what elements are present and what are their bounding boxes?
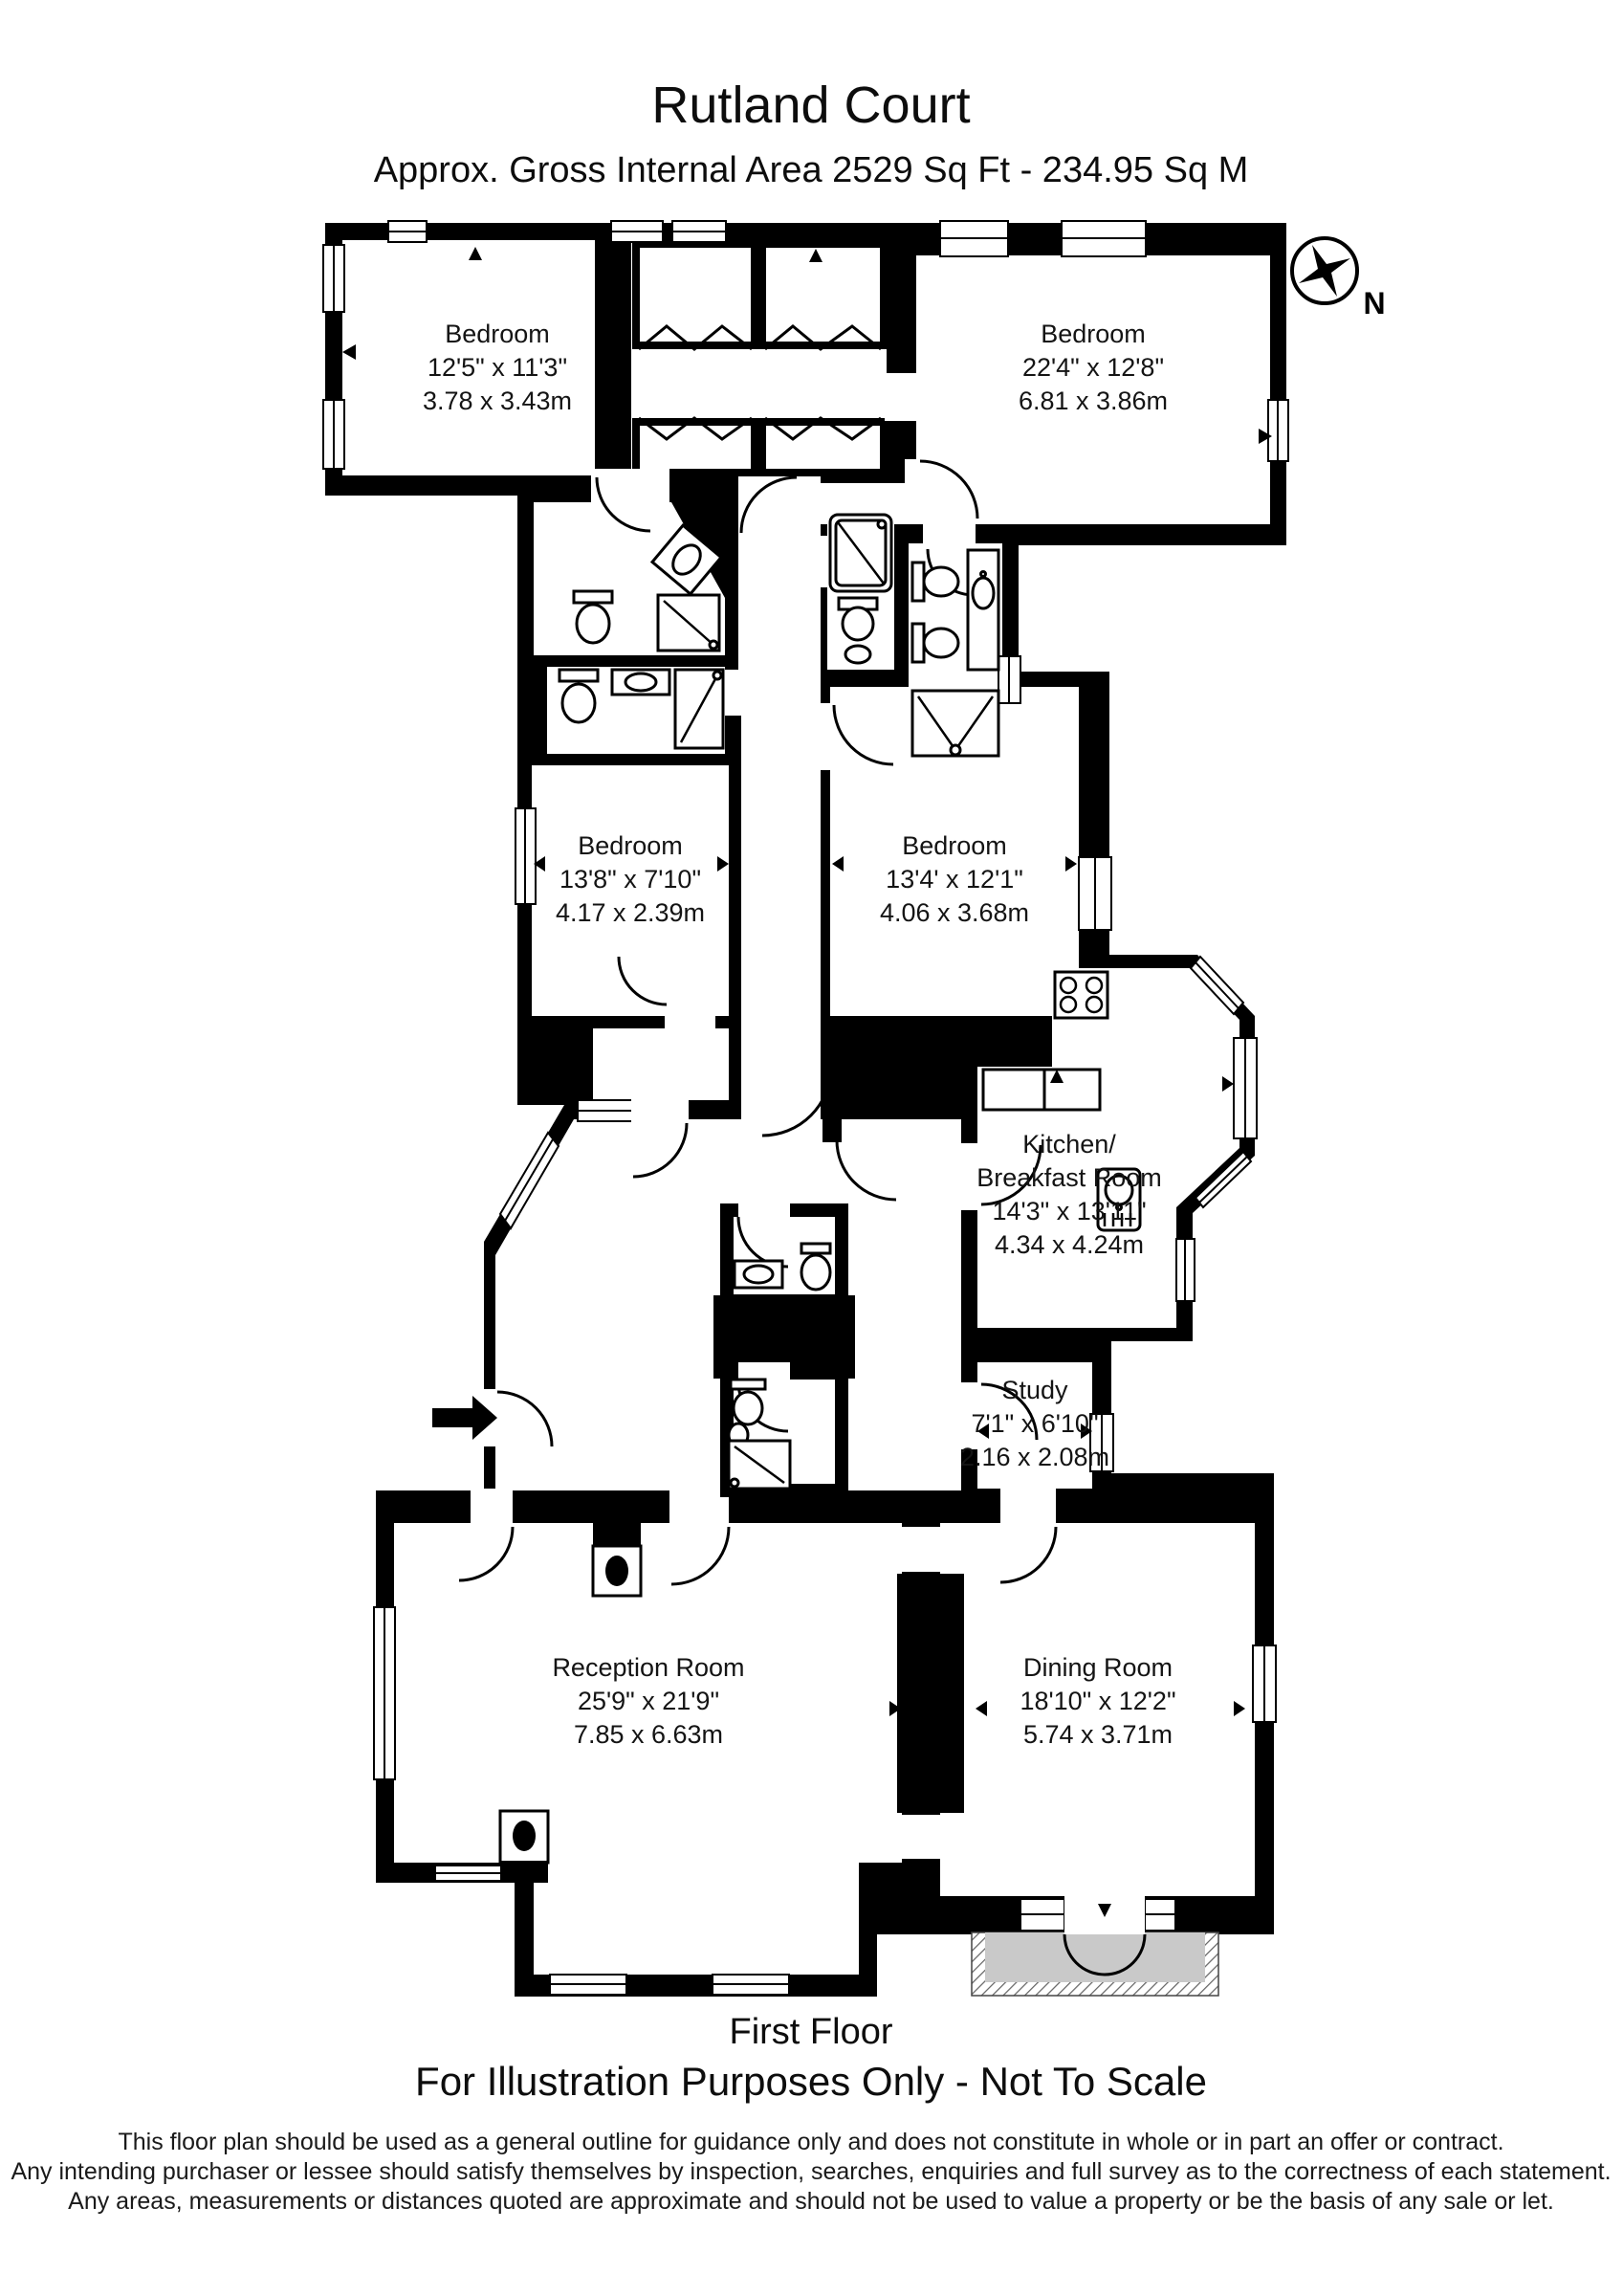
fireplace-icon bbox=[593, 1523, 641, 1596]
room-dims-imperial: 22'4" x 12'8" bbox=[1022, 353, 1164, 382]
room-name: Bedroom bbox=[578, 831, 683, 860]
sink-icon bbox=[612, 670, 669, 695]
sink-icon bbox=[735, 1261, 782, 1288]
compass-rose: N bbox=[1292, 238, 1386, 320]
room-dims-imperial: 7'1" x 6'10" bbox=[971, 1409, 1098, 1438]
page-subtitle: Approx. Gross Internal Area 2529 Sq Ft -… bbox=[374, 150, 1249, 190]
compass-star-icon bbox=[1299, 245, 1350, 297]
room-dims-metric: 2.16 x 2.08m bbox=[960, 1443, 1109, 1471]
door-opening bbox=[471, 1489, 513, 1527]
shower-icon bbox=[675, 670, 723, 748]
room-name: Bedroom bbox=[1041, 320, 1146, 348]
room-name-line2: Breakfast Room bbox=[976, 1163, 1162, 1192]
room-name: Bedroom bbox=[445, 320, 550, 348]
closet-top-left bbox=[636, 244, 755, 345]
sink-icon bbox=[845, 646, 870, 663]
passage-opening bbox=[897, 1527, 945, 1572]
room-dims-metric: 5.74 x 3.71m bbox=[1023, 1720, 1173, 1749]
disclaimer-line: This floor plan should be used as a gene… bbox=[118, 2129, 1503, 2155]
bedroom-lobby bbox=[593, 1028, 729, 1100]
floor-plan-page: Rutland Court Approx. Gross Internal Are… bbox=[0, 0, 1623, 2296]
room-name: Dining Room bbox=[1023, 1653, 1173, 1682]
shower-icon bbox=[658, 595, 719, 651]
upper-corridor bbox=[738, 475, 821, 684]
passage-opening bbox=[897, 1815, 945, 1859]
door-opening bbox=[818, 703, 834, 770]
room-dims-imperial: 12'5" x 11'3" bbox=[428, 353, 567, 382]
door-opening bbox=[923, 524, 976, 549]
floor-label: First Floor bbox=[730, 2012, 893, 2052]
door-opening bbox=[631, 1098, 689, 1123]
room-dims-metric: 4.34 x 4.24m bbox=[995, 1230, 1144, 1259]
compass-north-label: N bbox=[1363, 286, 1385, 320]
toilet-icon bbox=[801, 1244, 830, 1290]
door-opening bbox=[1000, 1483, 1056, 1527]
room-dims-metric: 4.06 x 3.68m bbox=[880, 898, 1029, 927]
sink-icon bbox=[968, 550, 998, 670]
toilet-icon bbox=[839, 598, 877, 640]
closet-top-right bbox=[762, 244, 884, 345]
counter bbox=[983, 1070, 1100, 1110]
room-dims-imperial: 25'9" x 21'9" bbox=[578, 1687, 719, 1715]
room-dims-imperial: 14'3" x 13'11" bbox=[992, 1197, 1146, 1225]
shower-icon bbox=[912, 691, 998, 756]
toilet-icon bbox=[559, 670, 598, 722]
room-name: Kitchen/ bbox=[1022, 1130, 1116, 1159]
page-title: Rutland Court bbox=[651, 77, 970, 134]
toilet-icon bbox=[731, 1380, 765, 1424]
bathtub-icon bbox=[830, 515, 891, 591]
hall-door-stub-wall bbox=[822, 1119, 842, 1142]
room-name: Study bbox=[1001, 1376, 1068, 1404]
disclaimer-line: Any intending purchaser or lessee should… bbox=[11, 2158, 1611, 2185]
door-opening bbox=[665, 1003, 715, 1033]
room-dims-metric: 6.81 x 3.86m bbox=[1019, 386, 1168, 415]
door-opening bbox=[885, 373, 920, 421]
reception-room bbox=[394, 1523, 902, 1975]
fireplace-icon bbox=[500, 1811, 548, 1883]
room-dims-metric: 7.85 x 6.63m bbox=[574, 1720, 723, 1749]
door-opening bbox=[738, 1200, 790, 1219]
room-dims-metric: 4.17 x 2.39m bbox=[556, 898, 705, 927]
reception-dining-divider-wall bbox=[897, 1574, 964, 1813]
room-dims-imperial: 13'4' x 12'1" bbox=[886, 865, 1023, 894]
room-name: Reception Room bbox=[552, 1653, 744, 1682]
room-dims-metric: 3.78 x 3.43m bbox=[423, 386, 572, 415]
room-name: Bedroom bbox=[902, 831, 1007, 860]
disclaimer-line: Any areas, measurements or distances quo… bbox=[68, 2188, 1554, 2215]
scale-note: For Illustration Purposes Only - Not To … bbox=[415, 2059, 1207, 2104]
hob-icon bbox=[1055, 972, 1108, 1018]
floor-plan-canvas: Rutland Court Approx. Gross Internal Are… bbox=[0, 0, 1623, 2296]
toilet-icon bbox=[574, 591, 612, 643]
shower-icon bbox=[729, 1441, 790, 1489]
door-opening bbox=[669, 1489, 729, 1527]
room-dims-imperial: 18'10" x 12'2" bbox=[1020, 1687, 1175, 1715]
room-dims-imperial: 13'8" x 7'10" bbox=[559, 865, 701, 894]
middle-corridor bbox=[741, 684, 821, 1124]
door-opening bbox=[905, 459, 920, 519]
